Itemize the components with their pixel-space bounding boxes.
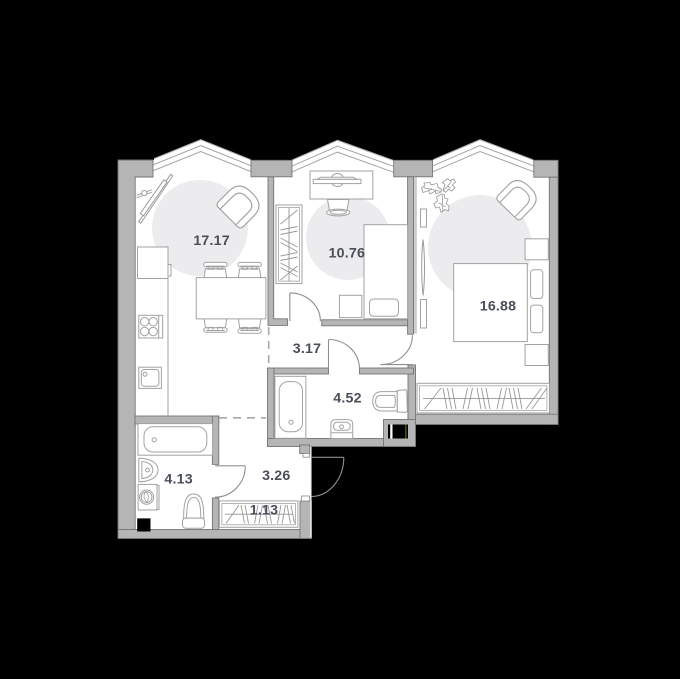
svg-text:3.26: 3.26 — [262, 468, 290, 484]
svg-text:3.17: 3.17 — [293, 341, 321, 357]
svg-text:4.52: 4.52 — [333, 391, 361, 407]
svg-text:10.76: 10.76 — [329, 246, 366, 262]
svg-text:17.17: 17.17 — [193, 233, 230, 249]
svg-text:16.88: 16.88 — [480, 299, 517, 315]
svg-text:1.13: 1.13 — [250, 503, 278, 519]
svg-text:4.13: 4.13 — [164, 472, 192, 488]
